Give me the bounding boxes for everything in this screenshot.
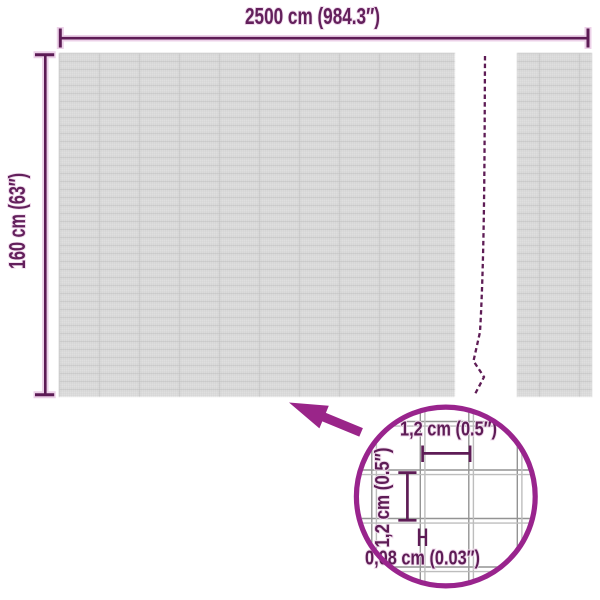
svg-text:160 cm (63″): 160 cm (63″) — [4, 173, 30, 269]
svg-text:2500 cm (984.3″): 2500 cm (984.3″) — [245, 3, 380, 29]
svg-text:1,2 cm (0.5″): 1,2 cm (0.5″) — [372, 448, 394, 548]
svg-text:1,2 cm (0.5″): 1,2 cm (0.5″) — [400, 419, 497, 441]
